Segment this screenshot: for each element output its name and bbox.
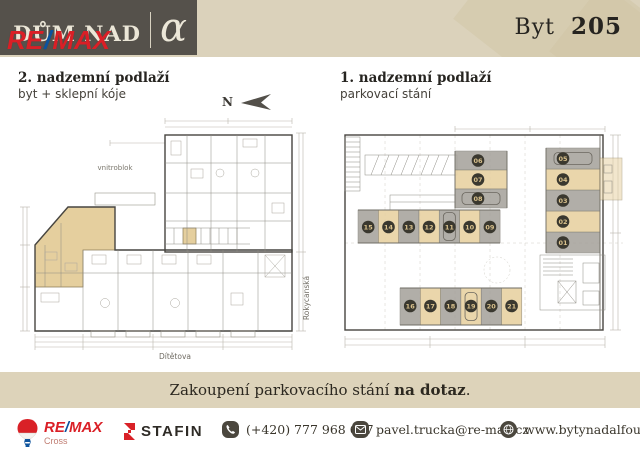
floorplan-1np-parking: 0102030405060708091011121314151617181920… <box>335 113 635 375</box>
stair-core <box>540 255 605 310</box>
north-arrow-icon <box>237 92 273 112</box>
stall-number: 19 <box>466 302 476 310</box>
alpha-glyph: α <box>160 10 187 50</box>
banner-text-bold: na dotaz <box>394 381 466 399</box>
left-plan-subtitle: byt + sklepní kóje <box>18 87 170 103</box>
tech-rooms <box>600 158 622 200</box>
project-logo-box: DŮM NAD α RE/MAX <box>0 0 197 55</box>
stall-number: 13 <box>404 223 413 231</box>
stall-number: 21 <box>507 302 517 310</box>
remax-re: RE <box>44 419 65 436</box>
north-label: N <box>222 95 233 109</box>
stall-number: 03 <box>558 197 567 205</box>
stall-number: 02 <box>558 218 567 226</box>
stall-number: 04 <box>558 176 568 184</box>
stall-number: 08 <box>473 195 483 203</box>
stall-number: 05 <box>558 155 568 163</box>
stafin-logo: STAFIN <box>122 422 203 441</box>
right-plan-subtitle: parkovací stání <box>340 87 492 103</box>
stall-number: 09 <box>485 223 495 231</box>
stafin-icon <box>122 422 137 441</box>
banner-text-end: . <box>466 381 471 399</box>
street-label-bottom: Dítětova <box>159 352 191 361</box>
remax-wordmark: RE/MAX <box>44 420 102 435</box>
remax-office-logo: RE/MAX Cross <box>16 418 102 448</box>
parking-stall-01 <box>546 232 600 253</box>
floorplan-2np: vnitroblok Rokycanská Dítětova <box>15 113 315 365</box>
remax-slash: / <box>43 25 52 55</box>
stall-number: 20 <box>487 302 497 310</box>
parking-note-banner: Zakoupení parkovacího stání na dotaz. <box>0 372 640 408</box>
ramp-hatch <box>345 137 457 210</box>
website-contact: www.bytynadalfou.cz <box>500 421 640 438</box>
stall-number: 17 <box>426 302 435 310</box>
stafin-wordmark: STAFIN <box>141 423 203 440</box>
stall-number: 12 <box>424 223 433 231</box>
stall-number: 14 <box>384 223 394 231</box>
stall-number: 11 <box>445 223 455 231</box>
left-plan-title: 2. nadzemní podlaží <box>18 70 170 87</box>
listing-page: { "header": { "brand_title": "DŮM NAD", … <box>0 0 640 452</box>
right-plan-header: 1. nadzemní podlaží parkovací stání <box>340 70 492 102</box>
banner-text: Zakoupení parkovacího stání <box>170 381 395 399</box>
phone-icon <box>222 421 239 438</box>
remax-max: MAX <box>52 25 110 55</box>
email-icon <box>352 421 369 438</box>
stall-number: 07 <box>473 176 482 184</box>
courtyard-label: vnitroblok <box>98 164 134 172</box>
north-arrow: N <box>222 92 273 112</box>
street-label-right: Rokycanská <box>302 276 311 320</box>
globe-icon <box>500 421 517 438</box>
footer: RE/MAX Cross STAFIN (+420) 777 968 697 p… <box>0 408 640 452</box>
stall-number: 10 <box>465 223 475 231</box>
remax-max: MAX <box>69 419 102 436</box>
remax-balloon-icon <box>16 418 39 448</box>
remax-office-name: Cross <box>44 437 102 446</box>
unit-number: 205 <box>571 13 622 40</box>
highlighted-cellar-box <box>183 228 196 244</box>
phone-contact: (+420) 777 968 697 <box>222 421 374 438</box>
unit-label: Byt <box>515 15 555 40</box>
stall-number: 15 <box>364 223 374 231</box>
parking-stall-04 <box>546 169 600 190</box>
unit-title: Byt 205 <box>515 13 622 40</box>
parking-stalls: 0102030405060708091011121314151617181920… <box>358 148 600 325</box>
right-plan-title: 1. nadzemní podlaží <box>340 70 492 87</box>
remax-logo: RE/MAX <box>7 27 110 53</box>
stall-number: 01 <box>558 239 568 247</box>
parking-stall-03 <box>546 190 600 211</box>
parking-stall-02 <box>546 211 600 232</box>
logo-divider <box>150 12 151 48</box>
remax-re: RE <box>7 25 43 55</box>
left-plan-header: 2. nadzemní podlaží byt + sklepní kóje <box>18 70 170 102</box>
stall-number: 16 <box>406 302 416 310</box>
stall-number: 06 <box>473 157 483 165</box>
website-url: www.bytynadalfou.cz <box>524 422 640 437</box>
stall-number: 18 <box>446 302 456 310</box>
